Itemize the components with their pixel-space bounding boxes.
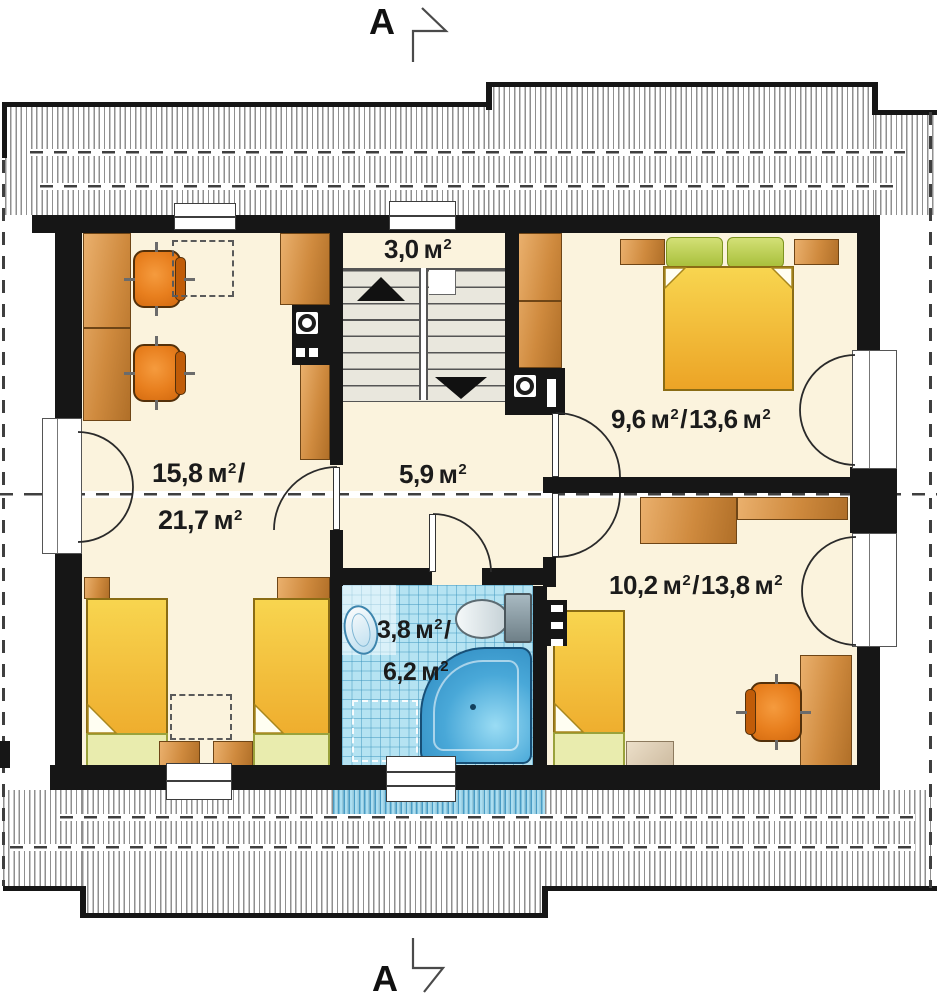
chair-leg bbox=[155, 242, 158, 252]
door-leaf bbox=[429, 514, 436, 572]
roof-edge bbox=[545, 886, 937, 891]
area-label-hall: 5,9м2 bbox=[399, 461, 466, 487]
roof-dash-line bbox=[60, 814, 915, 821]
window-line bbox=[387, 785, 455, 787]
bathroom-low-ceiling-outline bbox=[352, 700, 418, 762]
nightstand bbox=[620, 239, 665, 265]
window bbox=[174, 203, 236, 230]
wall-bathroom-top bbox=[330, 568, 432, 585]
roof-edge bbox=[3, 886, 82, 891]
floor-plan: 3,0м2 15,8м2/ 21,7м2 5,9м2 9,6м2/13,6м2 … bbox=[0, 0, 937, 1000]
section-mark-top bbox=[413, 8, 446, 62]
door-frame-line bbox=[869, 351, 870, 468]
chair-leg bbox=[800, 711, 811, 714]
eave-outline-left bbox=[2, 160, 5, 886]
double-bed bbox=[663, 266, 794, 391]
roof-edge-step bbox=[542, 886, 548, 918]
radiator-slot bbox=[551, 639, 563, 646]
wardrobe bbox=[640, 497, 737, 544]
single-bed bbox=[253, 598, 330, 768]
wall-left bbox=[55, 233, 82, 420]
vent-slot bbox=[309, 348, 318, 357]
wall-bathroom-right bbox=[533, 586, 547, 765]
vent-fan-icon bbox=[514, 375, 536, 397]
window-line bbox=[390, 215, 455, 217]
section-marker-bottom: A bbox=[372, 958, 398, 1000]
area-label-bedroom-bottom: 10,2м2/13,8м2 bbox=[609, 572, 782, 598]
desk bbox=[83, 233, 131, 421]
toilet-bowl bbox=[455, 599, 509, 639]
vent-ring bbox=[298, 314, 316, 332]
cabinet bbox=[300, 363, 330, 460]
window-line bbox=[167, 780, 231, 782]
door-leaf bbox=[552, 493, 559, 557]
chair-leg bbox=[155, 400, 158, 410]
door-frame-line bbox=[57, 419, 58, 553]
window bbox=[389, 201, 456, 230]
wall-left bbox=[55, 552, 82, 767]
door-frame-line bbox=[869, 534, 870, 646]
toilet-tank bbox=[504, 593, 532, 643]
desk-divider bbox=[84, 327, 130, 329]
roof-hatch-bottom-left bbox=[3, 790, 82, 888]
section-mark-bottom bbox=[413, 938, 443, 992]
nightstand bbox=[794, 239, 839, 265]
stairs-divider bbox=[419, 268, 428, 400]
bathtub-drain bbox=[470, 704, 476, 710]
balcony-door-frame-left bbox=[42, 418, 82, 554]
window bbox=[386, 756, 456, 802]
wardrobe bbox=[518, 233, 562, 368]
pillow bbox=[666, 237, 723, 268]
wall-bathroom-left bbox=[330, 586, 342, 765]
area-label-line: 15,8м2/ bbox=[152, 452, 247, 499]
wall-bathroom-top bbox=[482, 568, 553, 585]
roof-edge bbox=[5, 102, 488, 107]
sink-basin bbox=[349, 612, 374, 649]
wardrobe-divider bbox=[519, 300, 561, 302]
roof-dash-line bbox=[10, 844, 915, 851]
pillow bbox=[727, 237, 784, 268]
chair-leg bbox=[736, 711, 747, 714]
nightstand bbox=[84, 577, 110, 599]
office-chair bbox=[750, 682, 802, 742]
door-leaf bbox=[552, 413, 559, 477]
roof-hatch-top-left bbox=[5, 105, 488, 215]
wardrobe bbox=[737, 497, 848, 520]
wall-corner bbox=[0, 741, 10, 768]
roof-edge bbox=[488, 82, 878, 87]
chair-leg bbox=[124, 278, 135, 281]
roof-edge bbox=[80, 913, 547, 918]
wall-partition bbox=[543, 477, 850, 493]
vent-fan-icon bbox=[296, 312, 318, 334]
radiator-slot bbox=[551, 605, 563, 612]
chair-leg bbox=[184, 372, 195, 375]
roof-edge-end bbox=[2, 102, 7, 158]
chair-leg bbox=[155, 306, 158, 316]
window-line bbox=[387, 771, 455, 773]
roof-dash-line bbox=[30, 149, 905, 156]
area-label-stairwell: 3,0м2 bbox=[384, 236, 451, 262]
vent-ring bbox=[516, 377, 534, 395]
chair-leg bbox=[775, 674, 778, 684]
area-label-bathroom: 3,8м2/ 6,2м2 bbox=[377, 611, 453, 695]
eave-outline-right bbox=[929, 112, 932, 888]
dormer-outline bbox=[170, 694, 232, 740]
chair-leg bbox=[155, 336, 158, 346]
vent-slot bbox=[296, 348, 305, 357]
roof-edge-step bbox=[80, 886, 86, 918]
balcony-door-frame-right bbox=[852, 533, 897, 647]
window-line bbox=[175, 216, 235, 218]
roof-edge-step bbox=[486, 82, 492, 110]
roof-hatch-bottom-right bbox=[545, 790, 935, 888]
door-leaf bbox=[333, 467, 340, 530]
radiator-slot bbox=[551, 622, 563, 629]
area-label-living-room: 15,8м2/ 21,7м2 bbox=[152, 452, 247, 546]
shelf bbox=[280, 233, 330, 305]
wall-interior bbox=[505, 233, 519, 370]
area-label-line: 21,7м2 bbox=[152, 499, 247, 546]
balcony-door-frame-right bbox=[852, 350, 897, 469]
vent-slot bbox=[547, 379, 556, 407]
stairs-landing bbox=[429, 270, 456, 295]
window bbox=[166, 763, 232, 800]
roof-edge bbox=[875, 110, 937, 115]
roof-dash-line bbox=[40, 183, 895, 190]
roof-edge-step bbox=[872, 82, 878, 115]
chair-leg bbox=[775, 740, 778, 750]
section-marker-top: A bbox=[369, 1, 395, 43]
wall-right bbox=[857, 645, 880, 767]
area-label-bedroom-top: 9,6м2/13,6м2 bbox=[611, 406, 770, 432]
wall-top bbox=[32, 215, 880, 233]
wall-right bbox=[857, 233, 880, 353]
wall-right bbox=[850, 467, 897, 533]
chair-leg bbox=[124, 372, 135, 375]
area-label-line: 6,2м2 bbox=[377, 653, 453, 695]
single-bed bbox=[86, 598, 168, 768]
area-label-line: 3,8м2/ bbox=[377, 611, 453, 653]
roof-hatch-top-right bbox=[875, 113, 937, 215]
office-chair bbox=[133, 344, 181, 402]
closet-outline bbox=[172, 240, 234, 297]
